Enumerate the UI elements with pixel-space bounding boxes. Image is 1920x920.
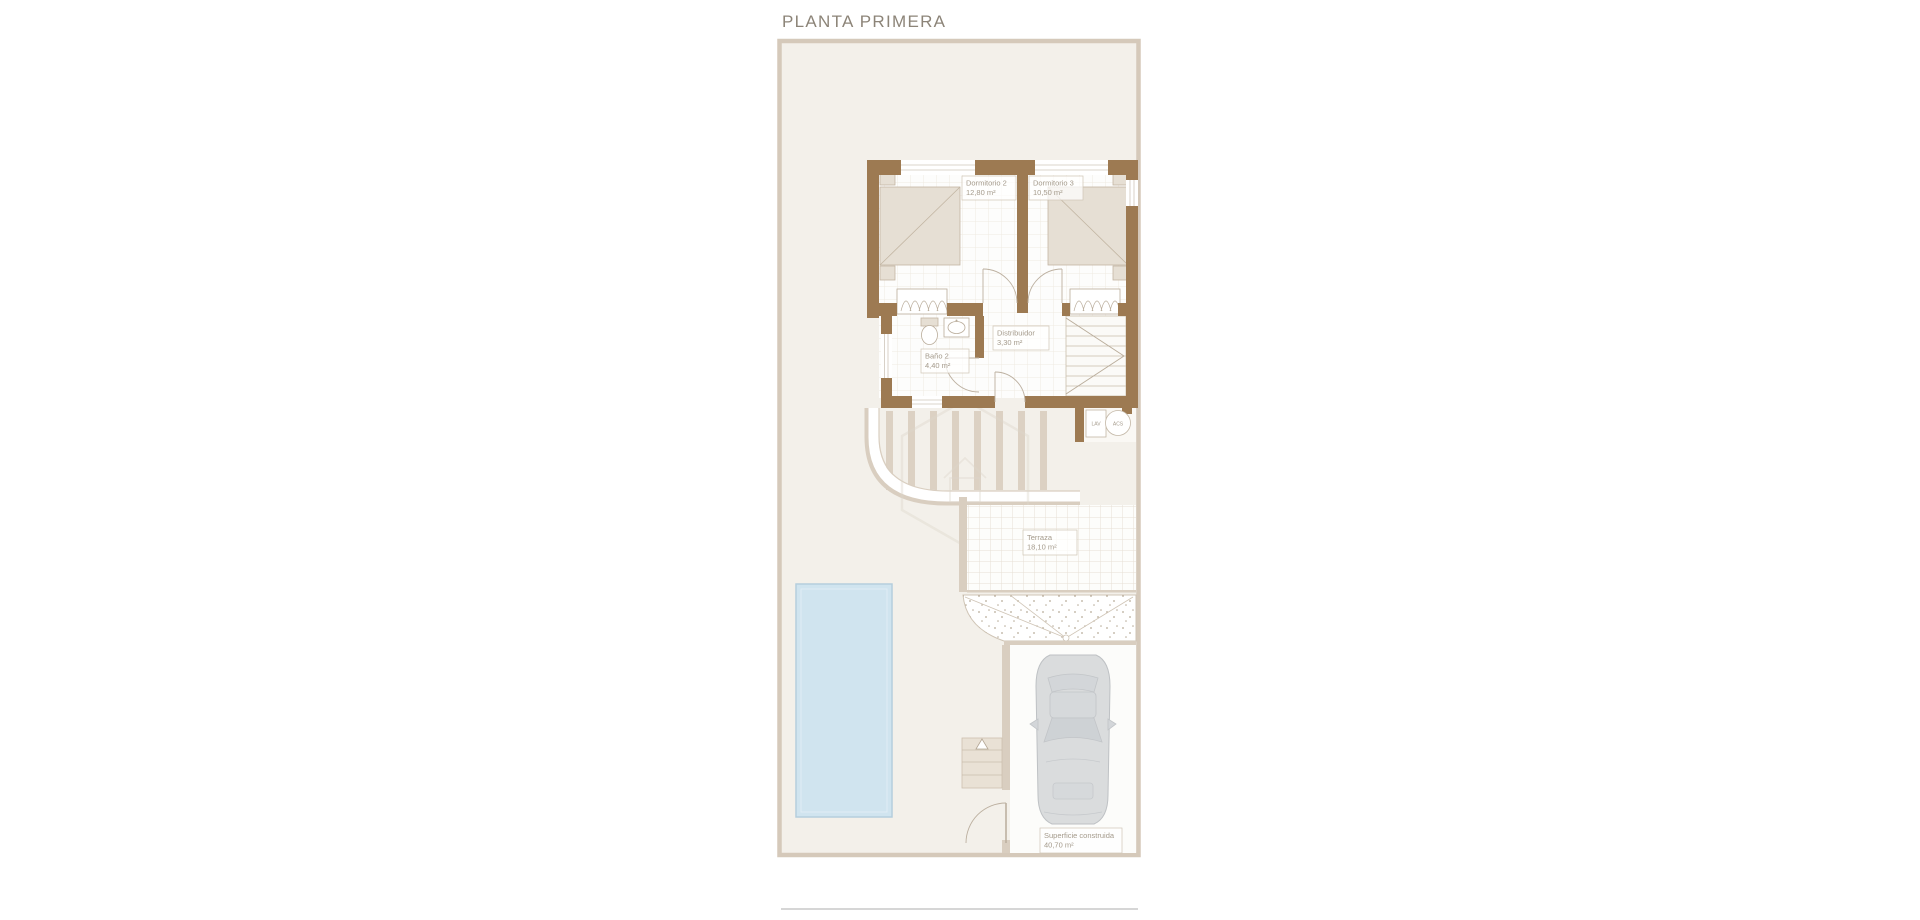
svg-text:Baño 2: Baño 2 bbox=[925, 352, 949, 361]
room-label-dormitorio-2: Dormitorio 2 12,80 m² bbox=[962, 176, 1016, 200]
svg-text:10,50 m²: 10,50 m² bbox=[1033, 188, 1063, 197]
svg-text:3,30 m²: 3,30 m² bbox=[997, 338, 1023, 347]
svg-text:Dormitorio 3: Dormitorio 3 bbox=[1033, 179, 1074, 188]
floor-plan-page: PLANTA PRIMERA bbox=[0, 0, 1920, 920]
exterior-stairs bbox=[962, 738, 1002, 788]
svg-text:Dormitorio 2: Dormitorio 2 bbox=[966, 179, 1007, 188]
svg-text:Distribuidor: Distribuidor bbox=[997, 329, 1035, 338]
gravel-area bbox=[963, 595, 1136, 641]
car bbox=[1030, 655, 1116, 824]
svg-text:ACS: ACS bbox=[1113, 422, 1124, 428]
interior-stairs bbox=[1066, 316, 1126, 396]
sink bbox=[944, 318, 969, 337]
svg-text:40,70 m²: 40,70 m² bbox=[1044, 841, 1074, 850]
room-label-distribuidor: Distribuidor 3,30 m² bbox=[993, 326, 1049, 350]
wardrobe-right bbox=[1070, 289, 1120, 314]
bed-dormitorio-2 bbox=[880, 171, 960, 280]
svg-text:Terraza: Terraza bbox=[1027, 533, 1053, 542]
svg-text:4,40 m²: 4,40 m² bbox=[925, 361, 951, 370]
room-label-terraza: Terraza 18,10 m² bbox=[1023, 530, 1077, 555]
car-hood-detail bbox=[1053, 783, 1093, 799]
svg-text:Superficie construida: Superficie construida bbox=[1044, 831, 1115, 840]
water-heater: ACS bbox=[1106, 411, 1131, 436]
toilet bbox=[921, 318, 938, 345]
room-label-dormitorio-3: Dormitorio 3 10,50 m² bbox=[1029, 176, 1083, 200]
svg-text:LAV: LAV bbox=[1091, 422, 1101, 428]
car-roof bbox=[1050, 692, 1096, 718]
washer-box: LAV bbox=[1086, 410, 1106, 437]
room-label-bano-2: Baño 2 4,40 m² bbox=[921, 349, 969, 373]
svg-text:18,10 m²: 18,10 m² bbox=[1027, 543, 1057, 552]
floor-plan-svg: LAV ACS Dormitorio 2 12,80 m² Dormitorio… bbox=[0, 0, 1920, 920]
wardrobe-left bbox=[897, 289, 947, 314]
pool bbox=[796, 584, 892, 817]
built-area-label: Superficie construida 40,70 m² bbox=[1040, 828, 1122, 853]
car-rear-window bbox=[1048, 674, 1098, 692]
svg-text:12,80 m²: 12,80 m² bbox=[966, 188, 996, 197]
